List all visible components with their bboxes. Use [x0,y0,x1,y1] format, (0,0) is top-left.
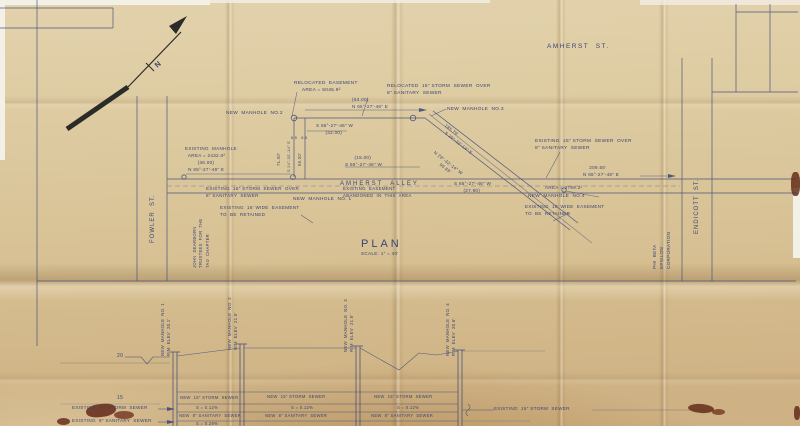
new-manhole-1-label: NEW MANHOLE NO. 1 [293,196,351,203]
existing-manhole-label: EXISTING MANHOLE AREA = 2432.0² (36.00) … [185,146,237,174]
elev-20: 20 [117,353,123,361]
seg2-san-label: NEW 8″ SANITARY SEWER [265,413,327,419]
seg1-slope-san: S = 0.29% [196,421,218,426]
profile-mh3-label: NEW MANHOLE NO. 3 RIM ELEV 21.5′ [343,299,356,352]
existing-12-storm-label: EXISTING 12″ STORM SEWER [72,405,148,412]
seg3-slope-storm: S = 0.12% [397,405,419,411]
relocated-storm-label: RELOCATED 15″ STORM SEWER OVER 8″ SANITA… [387,83,491,97]
dim-85: 8.5 8.5 [291,136,307,142]
easement-retained-right-label: EXISTING 16′ WIDE EASEMENT TO BE RETAINE… [525,204,604,218]
seg3-san-label: NEW 8″ SANITARY SEWER [371,413,433,419]
diag-bearing-lower: N 29°-32′-14″ W 99.89′ [428,150,464,182]
seg2-slope-storm: S = 0.12% [291,405,313,411]
endicott-st-label: ENDICOTT ST. [693,178,702,234]
dim-s24: S 24°-32′-14″ E [286,141,292,172]
scanned-plan-sheet: AMHERST ST.FOWLER ST.ENDICOTT ST.PHI BET… [0,0,800,426]
trustees-label: JOHN DEARBORN TRUSTEES FOR THE TAU CHAPT… [192,218,211,268]
existing-8-san-left-label: EXISTING 8″ SANITARY SEWER [72,418,152,425]
relocated-easement-label: RELOCATED EASEMENT AREA = 5045.9² [294,80,358,94]
dim-63: (63.00) N 65°-27′-46″ E [352,97,388,111]
profile-mh4-label: NEW MANHOLE NO. 4 RIM ELEV 20.6′ [445,303,458,356]
elev-15: 15 [117,395,123,403]
diag-bearing-upper: 185.79′ S 29°-32′-14″ E [439,123,477,157]
profile-mh2-label: NEW MANHOLE NO. 2 RIM ELEV 21.5′ [227,297,240,350]
easement-retained-left-label: EXISTING 16′ WIDE EASEMENT TO BE RETAINE… [220,205,299,219]
new-manhole-2-label: NEW MANHOLE NO.2 [226,110,283,117]
existing-storm-left-label: EXISTING 15″ STORM SEWER OVER 8″ SANITAR… [206,186,299,200]
phi-beta-epsilon-label: PHI BETA EPSILON CORPORATION [652,232,673,269]
dim-209: 209.55′ N 65°-27′-46″ E [583,165,619,179]
abandoned-easement-label: EXISTING EASEMENT ABANDONED IN THIS AREA [343,186,412,199]
north-label: N [152,58,164,70]
existing-storm-right-label: EXISTING 15″ STORM SEWER OVER 8″ SANITAR… [535,138,632,152]
seg1-san-label: NEW 8″ SANITARY SEWER [179,413,241,419]
fowler-st-label: FOWLER ST. [149,194,158,243]
new-manhole-3-label: NEW MANHOLE NO.3 [447,106,504,113]
dim-15: (15.00) S 65°-27′-46″ W [345,155,382,169]
amherst-st-label: AMHERST ST. [547,42,610,52]
annotation-layer: AMHERST ST.FOWLER ST.ENDICOTT ST.PHI BET… [0,0,800,426]
profile-mh1-label: NEW MANHOLE NO. 1 RIM ELEV 20.1′ [160,303,173,356]
existing-15-storm-right-label: EXISTING 15″ STORM SEWER [494,406,570,413]
new-manhole-4-label: NEW MANHOLE NO.4 [528,193,585,200]
seg2-storm-label: NEW 15″ STORM SEWER [267,394,325,400]
dim-55: 55.00′ [297,153,303,166]
plan-scale: SCALE: 1″ = 40′ [361,251,399,258]
seg1-slope-storm: S = 0.12% [196,405,218,411]
area-3799: AREA = 3799.2² [545,185,582,192]
dim-32: S 65°-27′-46″ W (32.00) [316,123,353,137]
seg3-storm-label: NEW 15″ STORM SEWER [374,394,432,400]
dim-71: 71.00′ [276,153,282,166]
dim-2790: S 65°-27′-46″ W (27.90) [454,181,491,195]
seg1-storm-label: NEW 15″ STORM SEWER [180,395,238,401]
